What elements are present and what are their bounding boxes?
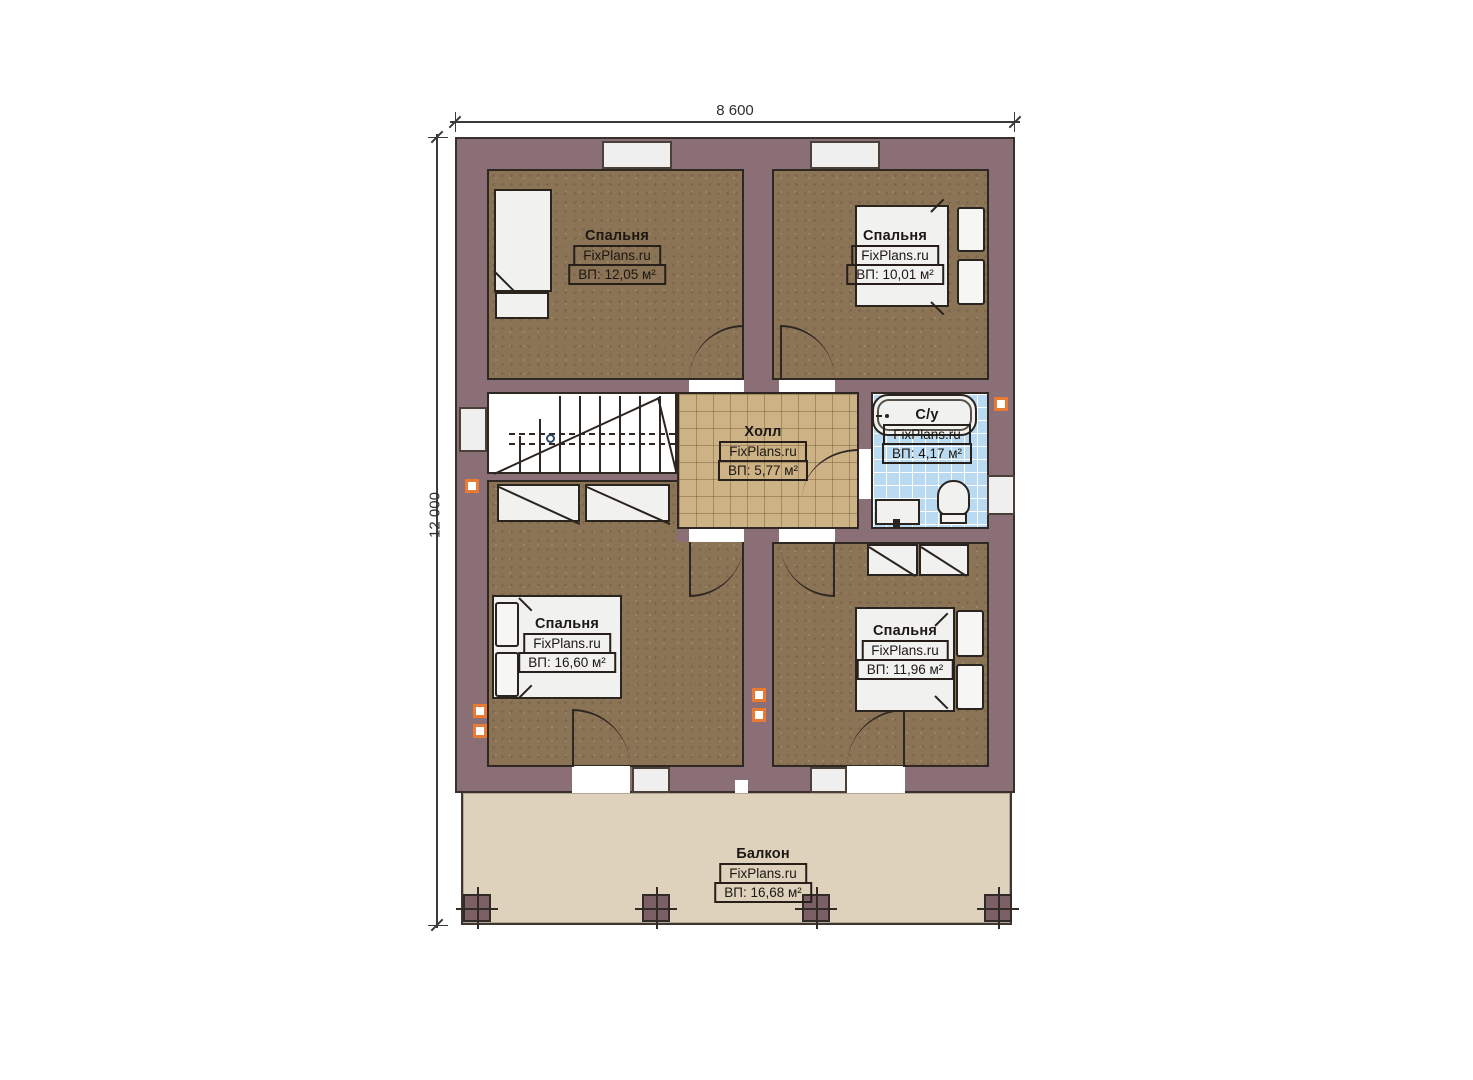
room-name: Спальня: [585, 228, 649, 244]
extension-line: [1014, 112, 1015, 132]
balcony-post: [984, 894, 1012, 922]
room-label-bedroom-bottom-right: Спальня FixPlans.ru ВП: 11,96 м²: [857, 623, 954, 680]
room-name: Холл: [744, 424, 781, 440]
pillow: [495, 602, 519, 647]
room-label-bathroom: С/у FixPlans.ru ВП: 4,17 м²: [882, 407, 972, 464]
room-area: ВП: 11,96 м²: [857, 659, 954, 680]
balcony-post: [642, 894, 670, 922]
extension-line: [455, 112, 456, 132]
closet: [497, 484, 580, 522]
room-area: ВП: 16,60 м²: [518, 652, 616, 673]
bed: [494, 189, 552, 292]
window: [810, 141, 880, 169]
balcony-door-opening: [572, 766, 630, 793]
stair-walk-line: [509, 443, 675, 445]
wardrobe-diagonal: [868, 546, 916, 577]
pillow: [956, 610, 984, 657]
pillow: [956, 664, 984, 710]
balcony-post: [463, 894, 491, 922]
window: [602, 141, 672, 169]
room-label-bedroom-top-left: Спальня FixPlans.ru ВП: 12,05 м²: [568, 228, 666, 285]
stair-tread: [539, 419, 541, 472]
pillow: [957, 207, 985, 252]
toilet-tank: [940, 513, 967, 524]
room-area: ВП: 5,77 м²: [718, 460, 808, 481]
room-label-bedroom-bottom-left: Спальня FixPlans.ru ВП: 16,60 м²: [518, 616, 616, 673]
watermark: FixPlans.ru: [573, 245, 661, 266]
room-label-balcony: Балкон FixPlans.ru ВП: 16,68 м²: [714, 846, 812, 903]
pillow: [495, 652, 519, 697]
wardrobe: [919, 544, 969, 576]
pillow: [957, 259, 985, 305]
watermark: FixPlans.ru: [719, 863, 807, 884]
utility-marker: [473, 724, 487, 738]
watermark: FixPlans.ru: [719, 441, 807, 462]
watermark: FixPlans.ru: [523, 633, 611, 654]
dimension-height-label: 12 000: [426, 492, 443, 538]
room-name: Балкон: [736, 846, 790, 862]
extension-line: [428, 925, 448, 926]
wall-vent: [735, 780, 748, 793]
utility-marker: [752, 708, 766, 722]
closet-diagonal: [499, 486, 581, 525]
floor-plan-canvas: 8 600 12 000: [0, 0, 1473, 1080]
staircase: [487, 392, 677, 474]
room-label-bedroom-top-right: Спальня FixPlans.ru ВП: 10,01 м²: [846, 228, 944, 285]
utility-marker: [465, 479, 479, 493]
room-label-hall: Холл FixPlans.ru ВП: 5,77 м²: [718, 424, 808, 481]
stair-tread: [519, 436, 521, 472]
dimension-line-width: [450, 121, 1020, 123]
room-area: ВП: 4,17 м²: [882, 443, 972, 464]
watermark: FixPlans.ru: [851, 245, 939, 266]
window: [987, 475, 1015, 515]
stair-walk-start: [546, 434, 555, 443]
window: [459, 407, 487, 452]
window: [632, 767, 670, 793]
sink-tap: [893, 519, 900, 528]
toilet: [937, 480, 970, 516]
balcony-door-opening: [847, 766, 905, 793]
door-opening: [689, 380, 744, 392]
window: [810, 767, 847, 793]
wardrobe: [867, 544, 918, 576]
door-opening: [779, 380, 835, 392]
extension-line: [428, 137, 448, 138]
utility-marker: [994, 397, 1008, 411]
stair-walk-line: [509, 433, 675, 435]
door-opening: [779, 529, 835, 542]
room-name: Спальня: [535, 616, 599, 632]
door-opening: [689, 529, 744, 542]
room-name: Спальня: [873, 623, 937, 639]
watermark: FixPlans.ru: [861, 640, 949, 661]
utility-marker: [752, 688, 766, 702]
room-area: ВП: 12,05 м²: [568, 264, 666, 285]
watermark: FixPlans.ru: [883, 424, 971, 445]
bed-foot: [495, 292, 549, 319]
closet: [585, 484, 670, 522]
wardrobe-diagonal: [920, 546, 967, 577]
room-area: ВП: 10,01 м²: [846, 264, 944, 285]
room-name: Спальня: [863, 228, 927, 244]
utility-marker: [473, 704, 487, 718]
room-area: ВП: 16,68 м²: [714, 882, 812, 903]
room-name: С/у: [915, 407, 938, 423]
closet-diagonal: [587, 486, 671, 525]
door-opening: [859, 449, 871, 499]
sink: [875, 499, 920, 525]
dimension-width-label: 8 600: [716, 102, 754, 119]
